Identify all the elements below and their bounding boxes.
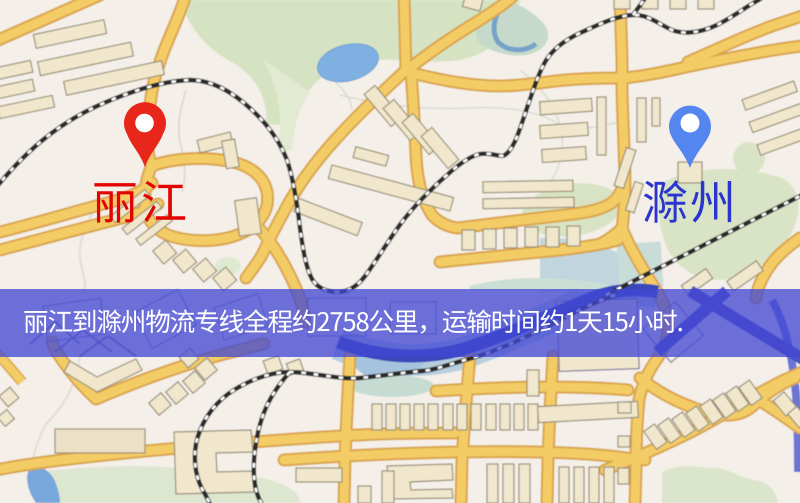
svg-text:丽江到滁州物流专线全程约2758公里，运输时间约1天15小时: 丽江到滁州物流专线全程约2758公里，运输时间约1天15小时. xyxy=(23,302,683,339)
svg-text:丽江: 丽江 xyxy=(92,167,190,233)
svg-text:滁州: 滁州 xyxy=(642,167,738,233)
